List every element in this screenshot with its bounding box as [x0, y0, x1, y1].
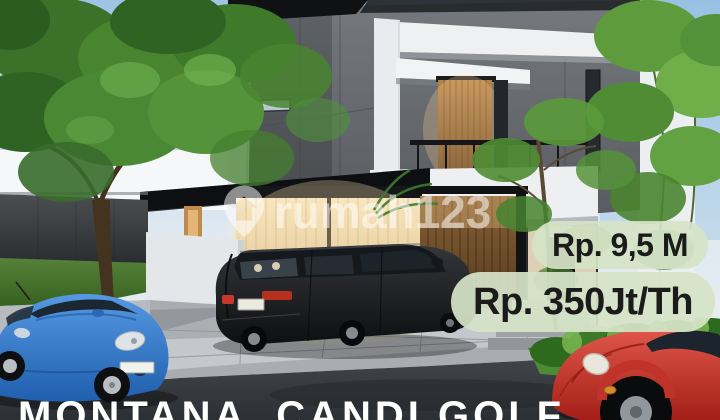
property-listing-photo: rumah123 Rp. 9,5 M Rp. 350Jt/Th MONTANA …: [0, 0, 720, 420]
black-minivan: [213, 244, 477, 359]
boundary-fence: [0, 192, 148, 264]
listing-caption: MONTANA CANDI GOLF: [18, 393, 565, 420]
price-badge-rent: Rp. 350Jt/Th: [451, 272, 715, 332]
price-badge-sale: Rp. 9,5 M: [532, 221, 708, 269]
house-render-illustration: [0, 0, 720, 420]
